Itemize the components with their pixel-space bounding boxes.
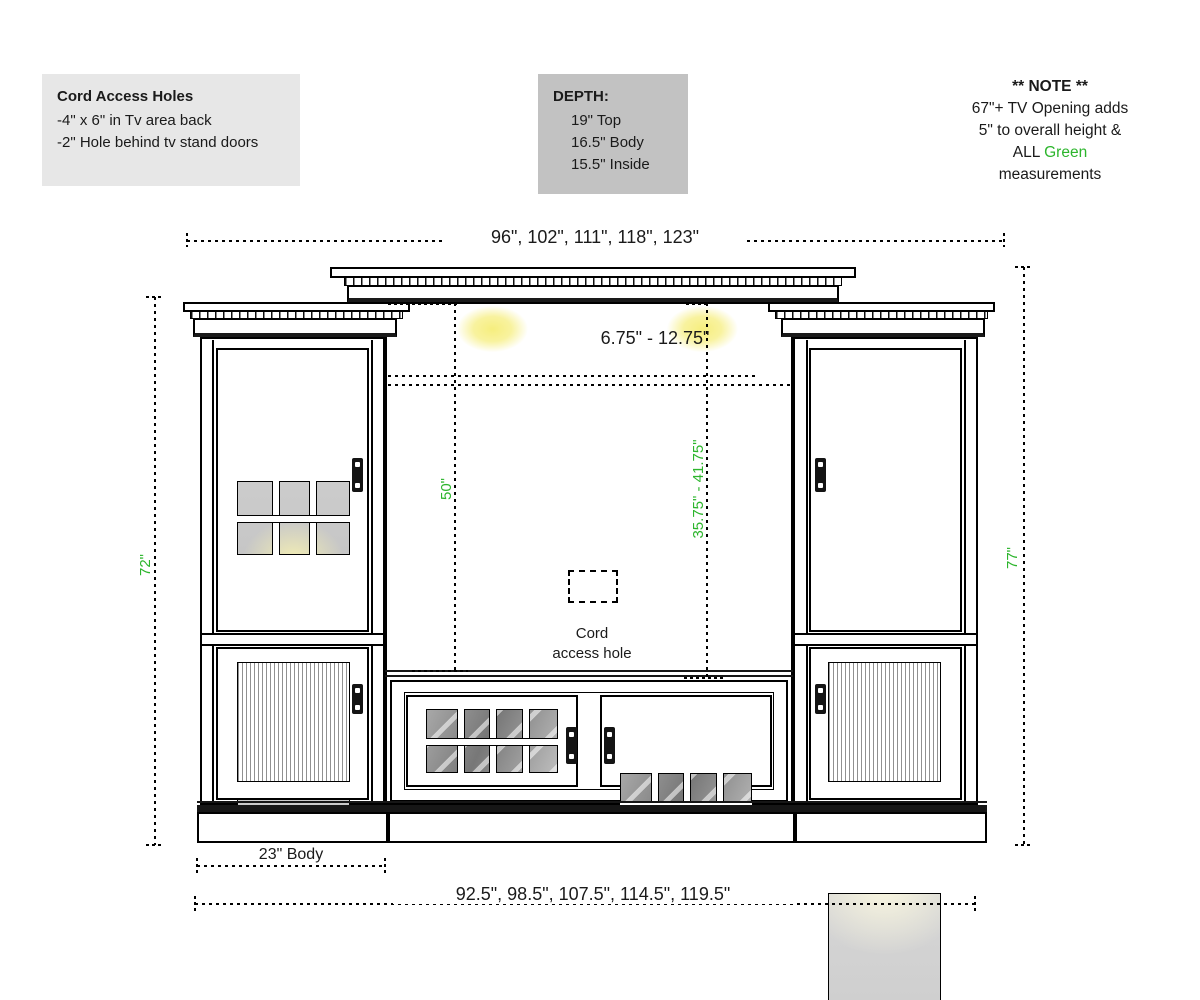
base-top-line [197,801,987,803]
depth-note-line: 16.5" Body [553,132,673,154]
dim-tick [412,670,468,672]
left-tower-face-line [212,340,214,802]
cord-access-notes-title: Cord Access Holes [57,86,285,108]
tv-stand-left-door-glass [426,709,558,773]
tv-opening-height-dim-label: 50" [439,469,455,509]
dim-tick [1015,266,1032,268]
left-tower-crown-frieze [193,318,397,337]
tv-stand-right-door-handle [604,727,615,764]
depth-notes-box: DEPTH: 19" Top 16.5" Body 15.5" Inside [538,74,688,194]
left-can-light-glow [445,298,540,360]
body-width-dim-label: 23" Body [211,846,371,864]
note-line: measurements [945,164,1155,186]
dim-tick [384,858,386,873]
muntin-bar [237,515,350,523]
cord-access-note-line: -4" x 6" in Tv area back [57,110,285,132]
base-dark-band [197,805,987,812]
note-line: 67"+ TV Opening adds [945,98,1155,120]
right-tower-crown-frieze [781,318,985,337]
right-tower-lower-door-handle [815,684,826,714]
dim-tick [388,303,458,305]
left-tower-upper-door-handle [352,458,363,492]
left-tower-upper-glass-grid [237,481,350,555]
top-width-dim-label: 96", 102", 111", 118", 123" [445,227,745,247]
left-tower-mid-rail [202,633,383,646]
dim-tick [1003,233,1005,247]
tv-stand-left-door-handle [566,727,577,764]
right-tower-frosted-panel [828,893,941,1000]
crown-gap-dim-label: 6.75" - 12.75" [530,328,780,348]
body-width-dim-line [197,865,385,867]
right-tower-mid-rail [795,633,976,646]
right-tower-upper-door [809,348,962,632]
right-height-dim-line [1023,267,1025,845]
crown-gap-dim-line-upper [388,375,758,377]
entertainment-center-drawing: Cord access hole [0,0,1200,1000]
dim-tick [684,677,726,679]
left-tower-face-line [371,340,373,802]
base-plinth-left [197,812,388,843]
right-height-dim-label: 77" [1005,538,1021,578]
note-line: 5" to overall height & [945,120,1155,142]
base-plinth-center [388,812,795,843]
dim-tick [194,896,196,911]
depth-note-line: 19" Top [553,110,673,132]
crown-gap-dim-line-lower [388,384,793,386]
note-green-word: Green [1044,144,1087,161]
cord-access-notes-box: Cord Access Holes -4" x 6" in Tv area ba… [42,74,300,186]
tv-stand-top-line-2 [385,675,793,677]
note-title: ** NOTE ** [945,76,1155,98]
muntin-bar [426,738,558,746]
dim-tick [974,896,976,911]
left-height-dim-label: 72" [138,545,154,585]
dim-tick [146,296,163,298]
right-tower-face-line [806,340,808,802]
depth-note-line: 15.5" Inside [553,154,673,176]
bottom-width-dim-label: 92.5", 98.5", 107.5", 114.5", 119.5" [393,884,793,904]
left-tower-lower-door-handle [352,684,363,714]
right-tower-upper-door-handle [815,458,826,492]
cord-access-note-line: -2" Hole behind tv stand doors [57,132,285,154]
left-tower-beadboard-panel [237,662,350,782]
right-tower-face-line [964,340,966,802]
note-block: ** NOTE ** 67"+ TV Opening adds 5" to ov… [945,76,1155,186]
left-height-dim-line [154,297,156,845]
tv-height-range-dim-label: 35.75" - 41.75" [691,414,707,564]
dim-tick [686,303,708,305]
center-crown-frieze [347,285,839,303]
dim-tick [146,844,163,846]
base-plinth-right [795,812,987,843]
dim-tick [186,233,188,247]
dim-tick [1015,844,1032,846]
right-tower-beadboard-panel [828,662,941,782]
dim-tick [196,858,198,873]
note-line: ALL Green [945,142,1155,164]
cord-access-hole-label: Cord access hole [522,624,662,664]
depth-notes-title: DEPTH: [553,86,673,108]
cord-access-hole-outline [568,570,618,603]
